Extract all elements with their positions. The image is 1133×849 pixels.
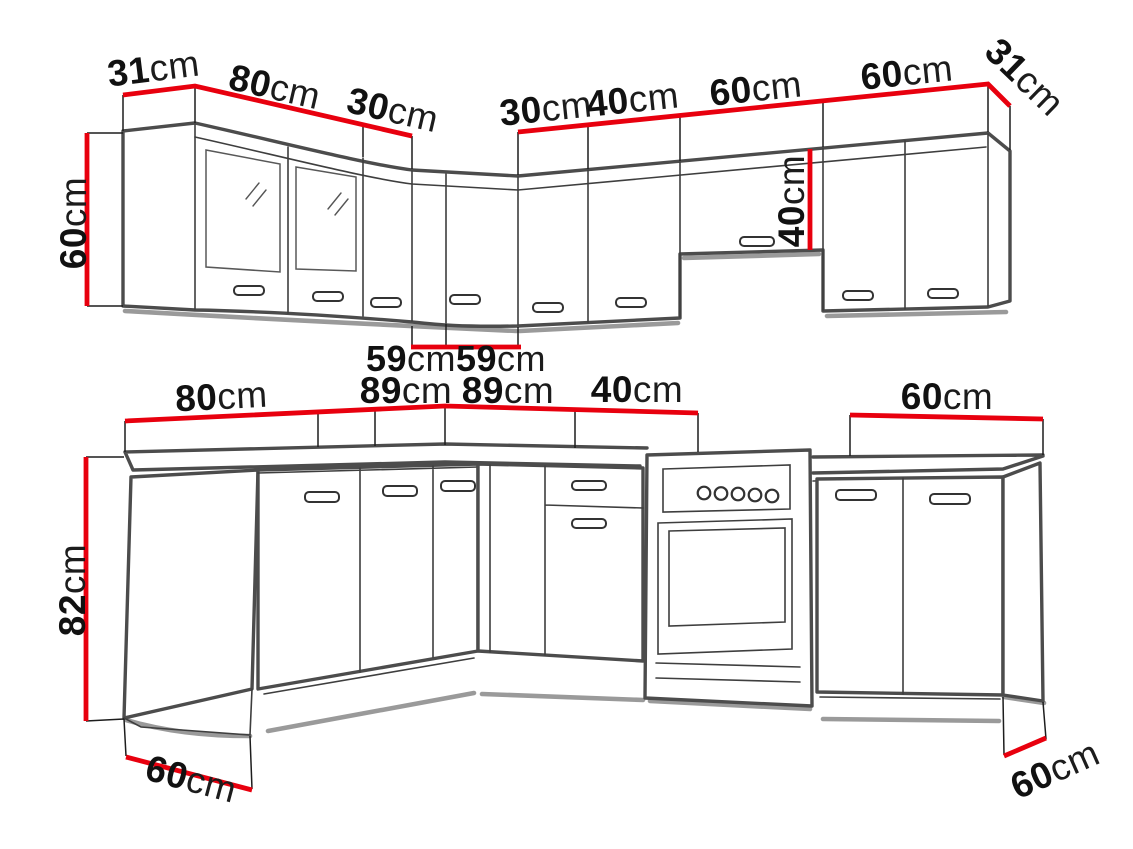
door-handle [441,481,475,491]
cooker-knob [766,490,779,503]
cooker-knob [715,487,728,500]
dim-label-height-60: 60cm [53,177,94,269]
dim-label-89-b: 89cm [462,370,554,411]
base-floor-shadow [126,693,1044,736]
drawer-handle [572,481,606,490]
base-main-run [478,464,643,661]
base-cabinets-drawing [124,444,1044,736]
kitchen-dimension-diagram: 31cm 80cm 30cm 30cm 40cm 60cm 60cm 31cm … [0,0,1133,849]
diagram-canvas: 31cm 80cm 30cm 30cm 40cm 60cm 60cm 31cm … [0,0,1133,849]
base-left-side-panel [124,470,258,718]
cooker-knob [749,489,762,502]
door-handle [930,494,970,504]
countertop-right [813,455,1043,473]
base-left-doors [258,464,478,689]
dim-label-height-40: 40cm [771,155,812,247]
dim-label-31-right: 31cm [977,30,1072,124]
door-handle [305,492,339,502]
cooker [645,450,812,706]
door-handle [740,237,774,246]
base-right-side-panel [1003,463,1043,701]
cooker-knob [732,488,745,501]
dim-label-40-base: 40cm [591,369,683,410]
dim-label-80: 80cm [225,56,324,117]
door-handle [616,298,646,307]
drawer-handle [572,519,606,528]
door-handle [843,291,873,300]
dim-label-60-base: 60cm [901,376,993,417]
door-handle [234,286,264,295]
door-handle [371,298,401,307]
door-handle [533,303,563,312]
cooker-body [645,450,812,706]
door-handle [928,289,958,298]
cooker-knob [698,487,711,500]
dim-label-89-a: 89cm [360,370,452,411]
door-handle [313,292,343,301]
dim-label-depth-60-left: 60cm [141,747,241,811]
base-right-doors [817,477,1003,695]
dim-label-depth-60-right: 60cm [1004,732,1105,807]
dim-label-80-base: 80cm [174,374,269,420]
wall-cabinets-drawing [123,123,1010,331]
door-handle [836,490,876,500]
dim-label-height-82: 82cm [52,544,93,636]
door-handle [383,486,417,496]
door-handle [450,295,480,304]
